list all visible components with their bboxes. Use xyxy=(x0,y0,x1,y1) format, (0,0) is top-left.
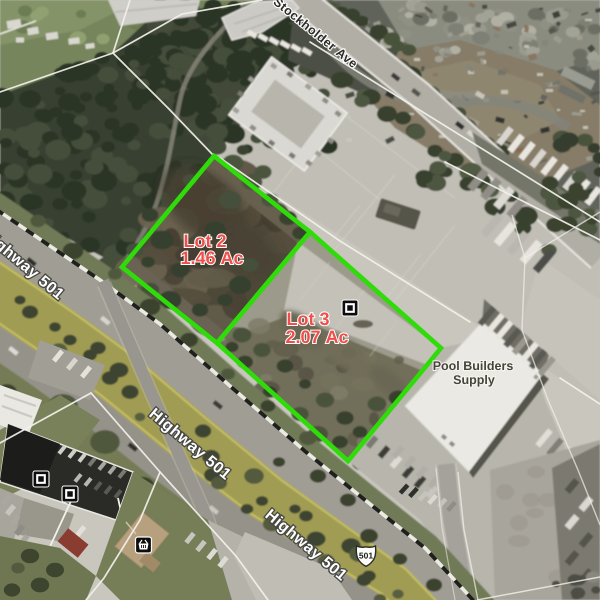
svg-text:501: 501 xyxy=(359,551,373,561)
svg-text:Pool Builders: Pool Builders xyxy=(433,359,514,373)
svg-text:Supply: Supply xyxy=(453,373,495,387)
svg-text:Lot 3: Lot 3 xyxy=(287,309,330,329)
svg-text:1.46 Ac: 1.46 Ac xyxy=(180,248,243,268)
svg-text:2.07 Ac: 2.07 Ac xyxy=(285,327,348,347)
